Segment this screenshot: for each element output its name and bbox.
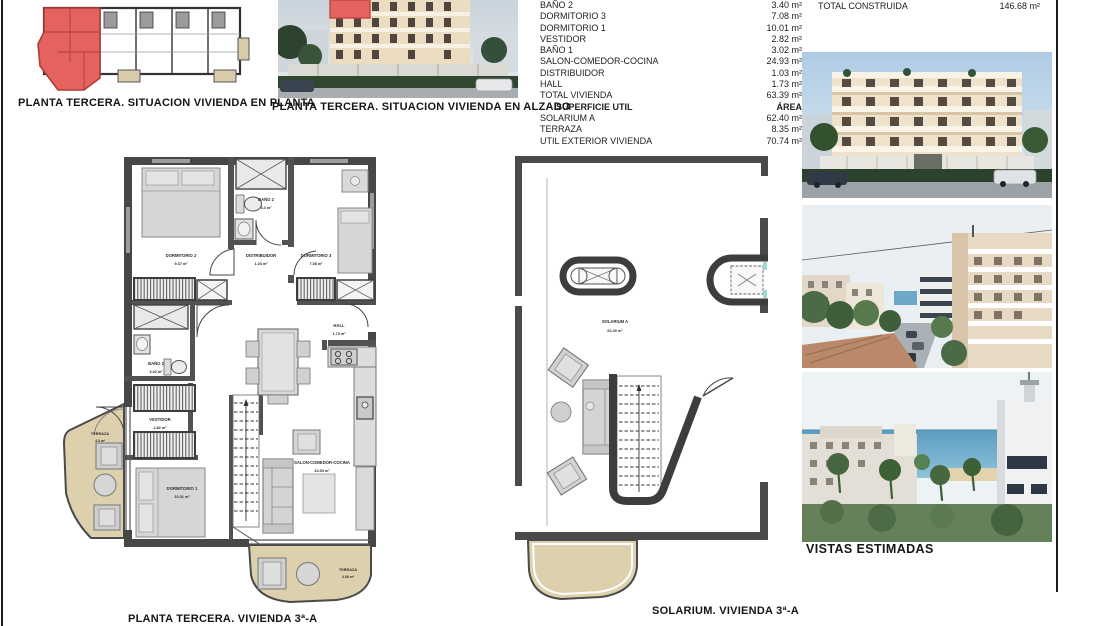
solarium-caption: SOLARIUM. VIVIENDA 3ª-A [652,605,799,617]
elevation-photo [278,0,518,98]
table-subheader: SUPERFICIE UTILÁREA [540,102,802,113]
kitchen [328,347,376,466]
elevation-caption: PLANTA TERCERA. SITUACION VIVIENDA EN AL… [272,101,522,113]
planter-right [710,258,768,302]
page-border-right [1056,0,1058,592]
key-plan-drawing [28,4,263,94]
room-label-bano1: BAÑO 1 [148,361,164,366]
stairs [233,395,261,545]
main-plan-caption: PLANTA TERCERA. VIVIENDA 3ª-A [128,613,317,625]
photo-street-view [802,205,1052,368]
room-area-bano1: 3.02 m² [149,370,163,374]
room-area-hall: 1.73 m² [332,332,346,336]
table-row: SOLARIUM A62.40 m² [540,113,802,124]
room-label-hall: HALL [333,323,345,328]
room-label-terraza-izq: TERRAZA [91,432,109,436]
room-label-vestidor: VESTIDOR [149,417,170,422]
solarium-plan: SOLARIUM A 62.40 m² [505,148,800,608]
room-area-salon: 24.93 m² [314,469,330,473]
total-construida-label: TOTAL CONSTRUIDA [818,0,908,13]
planter-left [563,260,633,292]
elevation-unit-highlight [330,0,370,18]
table-row: VESTIDOR2.82 m² [540,34,802,45]
table-row: DORMITORIO 110.01 m² [540,23,802,34]
room-label-distribuidor: DISTRIBUIDOR [246,253,276,258]
furniture-dormitorio3 [338,170,372,273]
solarium-terrace [528,540,637,599]
car-dark [280,80,314,92]
main-floorplan: DORMITORIO 2 9.37 m² BAÑO 2 3.4 m² DISTR… [60,147,432,609]
bed-dormitorio1 [136,468,205,537]
car-light [994,170,1036,184]
room-label-bano2: BAÑO 2 [258,197,274,202]
table-row: SALON-COMEDOR-COCINA24.93 m² [540,56,802,67]
solarium-label: SOLARIUM A [602,319,628,324]
room-area-bano2: 3.4 m² [261,206,273,210]
room-label-salon: SALON-COMEDOR-COCINA [294,460,350,465]
terrace-left [64,404,124,538]
wardrobes [134,278,374,300]
room-area-dormitorio2: 9.37 m² [174,262,188,266]
room-area-dormitorio1: 10.01 m² [174,495,190,499]
total-construida-row: TOTAL CONSTRUIDA 146.68 m² [818,0,1040,13]
solarium-stairs [613,374,733,501]
room-area-dormitorio3: 7.08 m² [309,262,323,266]
page-border-left [1,0,3,626]
room-label-terraza-inf: TERRAZA [339,568,357,572]
room-area-distribuidor: 1.03 m² [254,262,268,266]
solarium-area: 62.40 m² [607,329,623,333]
table-row: BAÑO 23.40 m² [540,0,802,11]
vistas-caption: VISTAS ESTIMADAS [806,542,934,556]
car-dark [807,172,847,185]
bed-dormitorio2 [142,168,220,237]
solarium-furniture [547,348,613,495]
photo-building-render [802,52,1052,198]
room-label-dormitorio2: DORMITORIO 2 [166,253,197,258]
table-row-total-vivienda: TOTAL VIVIENDA63.39 m² [540,90,802,101]
total-construida-value: 146.68 m² [999,0,1040,13]
dining-table [246,329,310,404]
table-row: UTIL EXTERIOR VIVIENDA70.74 m² [540,136,802,147]
room-label-dormitorio1: DORMITORIO 1 [167,486,198,491]
table-row: HALL1.73 m² [540,79,802,90]
car-light [476,79,512,91]
photo-sea-view [802,372,1052,542]
room-area-terraza-izq: 4.3 m² [95,439,106,443]
room-area-vestidor: 2.82 m² [153,426,167,430]
terrace-bottom [249,545,371,602]
table-row: DORMITORIO 37.08 m² [540,11,802,22]
street-right-building [952,225,1052,368]
key-plan-caption: PLANTA TERCERA. SITUACION VIVIENDA EN PL… [18,97,270,109]
room-label-dormitorio3: DORMITORIO 3 [301,253,332,258]
brochure-page: { "captions": { "plan_situacion": "PLANT… [0,0,1110,626]
table-row: DISTRIBUIDOR1.03 m² [540,68,802,79]
surface-table: BAÑO 23.40 m² DORMITORIO 37.08 m² DORMIT… [540,0,802,147]
table-row: BAÑO 13.02 m² [540,45,802,56]
key-plan-highlighted-unit [38,8,100,90]
table-row: TERRAZA8.35 m² [540,124,802,135]
room-area-terraza-inf: 4.06 m² [342,575,355,579]
